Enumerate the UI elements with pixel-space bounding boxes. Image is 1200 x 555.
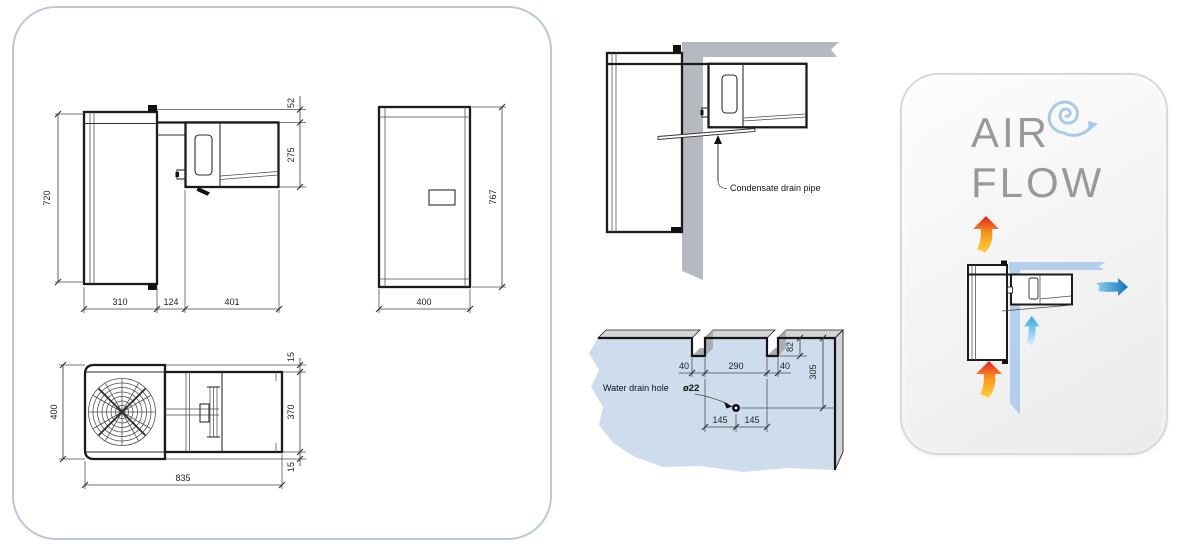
dim-label-124: 124	[163, 297, 178, 307]
dim-label-370: 370	[286, 404, 296, 419]
cold-air-arrow	[1024, 316, 1040, 346]
swirl-arrowhead	[1088, 121, 1098, 131]
dim-label-401: 401	[224, 297, 239, 307]
dim-label-835: 835	[175, 473, 190, 483]
hot-air-arrow-top	[973, 216, 999, 253]
dim-label-15-bottom: 15	[286, 462, 296, 472]
dim-height-720: 720	[42, 111, 84, 285]
condensate-label: Condensate drain pipe	[730, 183, 821, 193]
condenser-top-body	[165, 372, 282, 452]
hot-air-arrow-bottom	[976, 361, 1002, 398]
dim-label-145-left: 145	[712, 415, 727, 425]
dim-width-400: 400	[376, 289, 473, 313]
mounting-bracket-top	[148, 105, 157, 112]
hole-diameter-label: ø22	[683, 383, 699, 394]
dim-label-52: 52	[286, 98, 296, 108]
wall-hook-bottom	[671, 227, 681, 233]
dim-label-290: 290	[728, 361, 743, 371]
wall-top-face	[705, 330, 775, 338]
dim-label-400: 400	[416, 297, 431, 307]
mounting-bracket-bottom	[148, 284, 157, 290]
condensate-callout: Condensate drain pipe	[714, 135, 821, 193]
ceiling-wall	[1009, 262, 1106, 270]
dim-label-82: 82	[785, 342, 795, 352]
dim-label-275: 275	[286, 147, 296, 162]
dim-label-40-right: 40	[780, 361, 790, 371]
dim-label-15-top: 15	[286, 352, 296, 362]
airflow-schematic	[968, 216, 1128, 415]
front-view-drawing: 767 400	[376, 104, 506, 313]
evaporator-body	[84, 112, 157, 284]
airflow-panel: AIR FLOW	[900, 73, 1168, 455]
ceiling-wall	[682, 42, 839, 57]
exhaust-air-arrow	[1096, 278, 1128, 296]
swirl-icon	[1049, 102, 1098, 135]
evaporator-section	[607, 53, 682, 232]
dim-height-767: 767	[472, 104, 506, 290]
wall-top-face	[778, 330, 843, 338]
fan-grille-icon	[89, 379, 156, 446]
dim-label-40-left: 40	[679, 361, 689, 371]
dim-label-top-400: 400	[49, 404, 59, 419]
evaporator-section	[968, 265, 1007, 360]
wall-top-face	[598, 330, 700, 338]
dim-label-145-right: 145	[744, 415, 759, 425]
front-panel-body	[379, 107, 470, 287]
wall-hook-top	[673, 45, 681, 53]
dim-label-720: 720	[42, 190, 52, 205]
dimension-drawings: 720 52 275 310 124 401	[14, 8, 550, 538]
top-view-drawing: 400 15 370 15 835	[49, 352, 306, 489]
condenser-section	[1011, 275, 1072, 305]
wall-side-face	[835, 330, 843, 470]
drain-stub	[197, 187, 211, 196]
airflow-graphic: AIR FLOW	[902, 75, 1166, 453]
dim-label-310: 310	[112, 297, 127, 307]
airflow-title-flow: FLOW	[971, 159, 1104, 206]
dimensions-panel: 720 52 275 310 124 401	[12, 6, 552, 540]
side-view-drawing: 720 52 275 310 124 401	[42, 96, 306, 313]
condensate-drain-diagram: Condensate drain pipe	[595, 30, 860, 310]
side-wall	[682, 57, 703, 280]
dim-label-305: 305	[808, 364, 818, 379]
dim-depth-400: 400	[49, 362, 85, 462]
airflow-title-air: AIR	[971, 109, 1050, 156]
condenser-body	[186, 123, 279, 188]
dim-label-767: 767	[488, 189, 498, 204]
wall-cutout-diagram: 40 290 40 82 305 145 145 Water drain hol…	[583, 325, 860, 480]
callout-arrowhead	[714, 135, 722, 144]
water-drain-label: Water drain hole	[603, 383, 669, 393]
